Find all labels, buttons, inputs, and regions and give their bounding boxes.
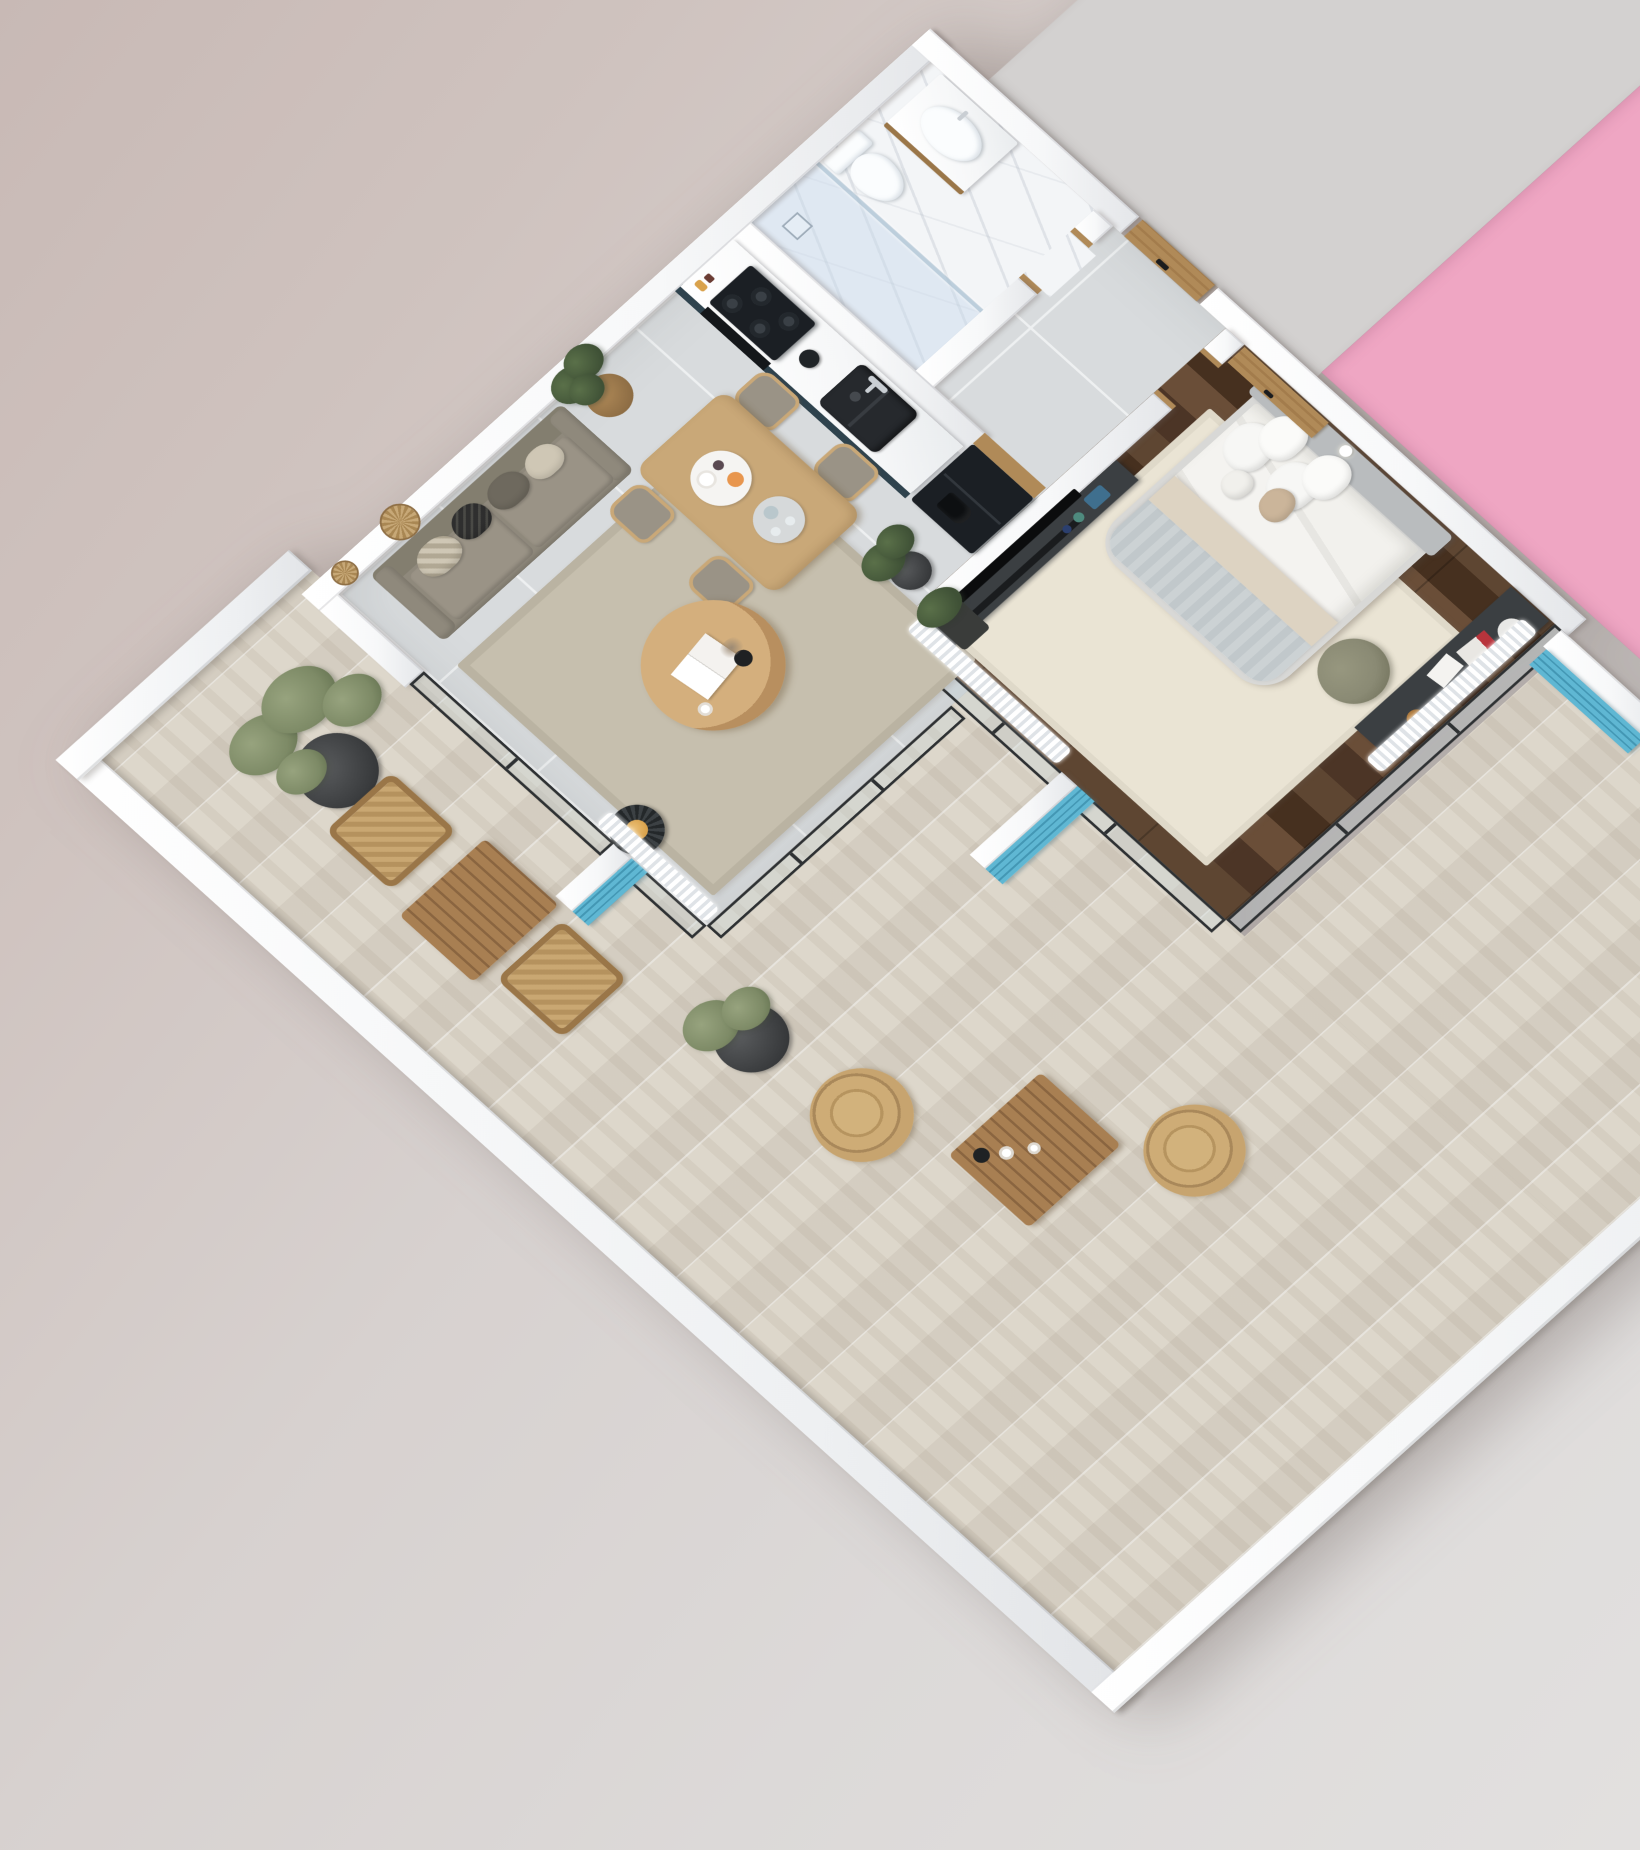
glass-mullion <box>1447 722 1460 734</box>
hob-burner <box>718 291 747 317</box>
glass-mullion <box>505 758 518 770</box>
floor-plan-render <box>0 0 1640 1850</box>
glass-mullion <box>992 722 1005 734</box>
glass-cup <box>783 514 797 527</box>
glass-mullion <box>789 852 802 864</box>
decanter <box>761 503 782 522</box>
berries <box>711 458 727 472</box>
glass-mullion <box>871 779 884 791</box>
glass-mullion <box>1335 823 1348 835</box>
coffee-cup <box>1025 1140 1043 1157</box>
coffee-cup <box>996 1144 1017 1163</box>
sink-drain-icon <box>847 390 863 404</box>
candle-lamp <box>970 1145 994 1166</box>
hob-burner <box>747 284 776 310</box>
orange-fruit <box>724 469 748 490</box>
glass-cup <box>768 525 782 538</box>
apartment-plan <box>49 0 1640 1766</box>
hob-burner <box>745 316 774 342</box>
hob-burner <box>774 308 803 334</box>
glass-mullion <box>1104 823 1117 835</box>
